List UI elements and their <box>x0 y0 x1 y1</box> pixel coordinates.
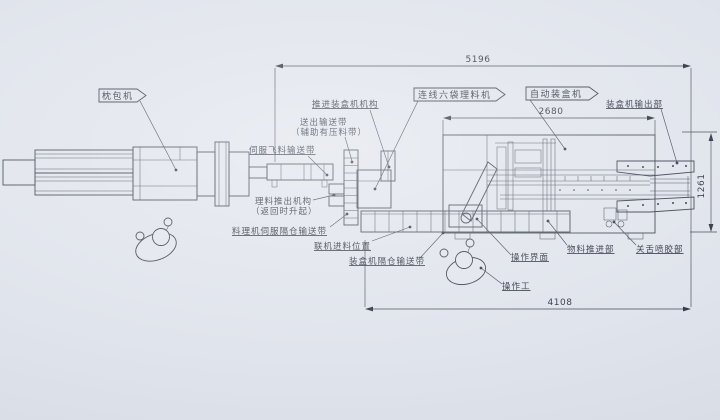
dimension-line-length: 4108 <box>365 298 691 311</box>
callout-servo-fly-belt: 伺服飞料输送带 <box>249 145 316 156</box>
callout-operator-panel: 操作界面 <box>511 252 549 263</box>
operator-figure-right <box>440 239 489 289</box>
callout-cartoner-outlet: 装盒机输出部 <box>606 99 663 110</box>
dimension-machine-width: 1261 <box>697 133 713 232</box>
callout-collator-servo-belt: 料理机伺服隔仓输送带 <box>232 226 327 237</box>
inline-collator-label: 连线六袋理料机 <box>418 89 492 101</box>
callout-outfeed-belt: 送出输送带 <box>300 117 348 128</box>
dim-machine-width-value: 1261 <box>697 174 707 199</box>
pennant-pillow-packer: 枕包机 <box>99 89 146 102</box>
callout-operator-person: 操作工 <box>502 281 531 292</box>
pillow-packer-machine <box>3 142 267 206</box>
automatic-cartoner-machine <box>443 135 655 239</box>
callout-push-into-cartoner: 推进装盒机机构 <box>312 99 379 110</box>
pennant-auto-cartoner: 自动装盒机 <box>526 87 598 100</box>
callout-inline-feed-position: 联机进料位置 <box>314 241 371 252</box>
dim-overall-length-value: 5196 <box>466 55 491 65</box>
dimension-overall-length: 5196 <box>275 55 691 68</box>
dim-line-length-value: 4108 <box>548 298 573 308</box>
drawing-sheet: 5196 2680 4108 1261 <box>0 0 720 420</box>
dim-cartoner-length-value: 2680 <box>539 107 564 117</box>
pennant-inline-collator: 连线六袋理料机 <box>414 88 505 101</box>
auto-cartoner-label: 自动装盒机 <box>530 88 583 100</box>
callout-tongue-glue-unit: 关舌喷胶部 <box>636 244 684 255</box>
cartoner-output-section <box>617 161 694 212</box>
callout-outfeed-belt-note: （辅助有压料带） <box>291 127 367 138</box>
servo-fly-feed-belt <box>267 164 333 187</box>
operator-figure-left <box>132 218 180 266</box>
callout-collator-pushout-note: （返回时升起） <box>251 206 318 217</box>
packaging-line-engineering-drawing: 5196 2680 4108 1261 <box>0 0 720 420</box>
pillow-packer-label: 枕包机 <box>102 90 134 102</box>
callout-cartoner-pocket-belt: 装盒机隔仓输送带 <box>349 256 425 267</box>
pocket-conveyor-belt <box>361 211 570 232</box>
callout-material-pusher: 物料推进部 <box>567 244 615 255</box>
callout-collator-pushout: 理料推出机构 <box>255 196 312 207</box>
